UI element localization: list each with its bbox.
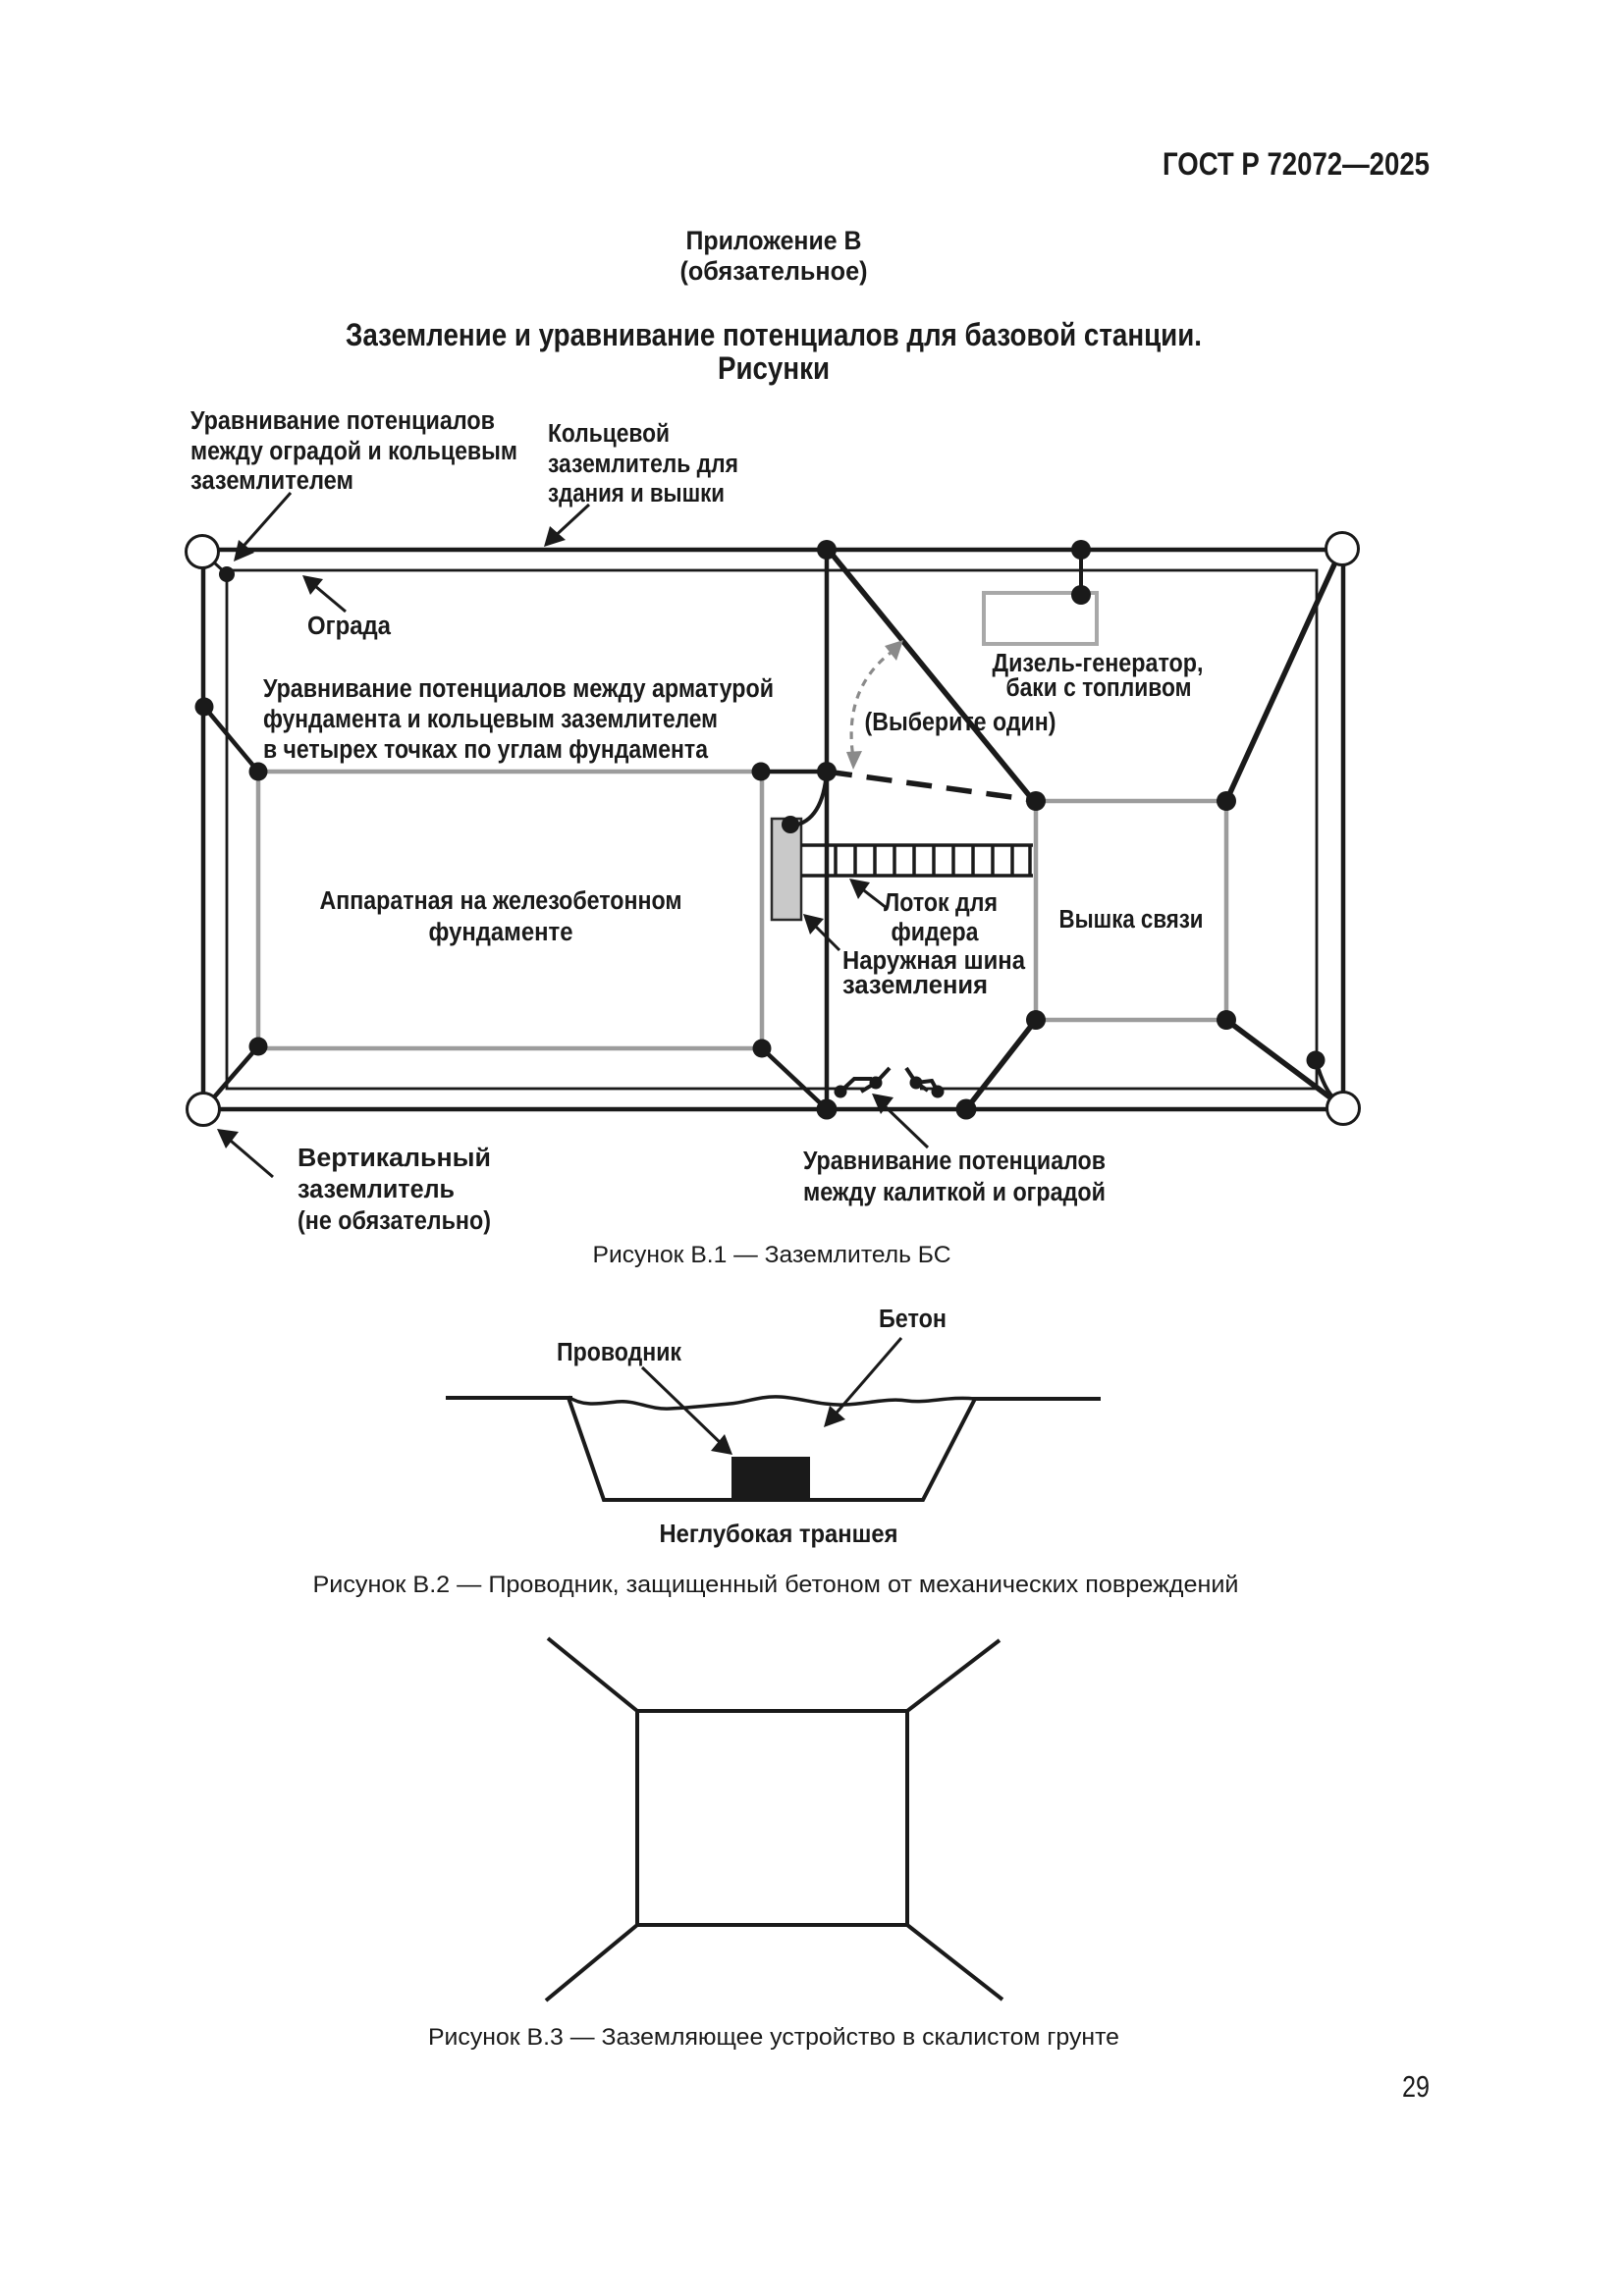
svg-text:Приложение В: Приложение В (686, 226, 862, 255)
svg-text:в четырех точках по углам фунд: в четырех точках по углам фундамента (263, 736, 709, 764)
svg-text:Аппаратная на железобетонном: Аппаратная на железобетонном (320, 887, 682, 915)
svg-text:(Выберите один): (Выберите один) (865, 709, 1056, 736)
svg-text:Рисунки: Рисунки (718, 350, 830, 386)
svg-text:Уравнивание потенциалов: Уравнивание потенциалов (190, 407, 495, 435)
svg-text:Рисунок В.2 — Проводник, защищ: Рисунок В.2 — Проводник, защищенный бето… (313, 1572, 1239, 1598)
svg-text:Уравнивание потенциалов: Уравнивание потенциалов (803, 1148, 1106, 1175)
svg-text:баки с топливом: баки с топливом (1006, 674, 1192, 702)
svg-text:фундаменте: фундаменте (429, 919, 573, 946)
svg-text:Бетон: Бетон (879, 1306, 947, 1333)
svg-text:заземлитель: заземлитель (298, 1176, 455, 1203)
svg-text:здания и вышки: здания и вышки (548, 480, 725, 507)
svg-text:Кольцевой: Кольцевой (548, 420, 670, 448)
svg-text:(обязательное): (обязательное) (680, 256, 868, 286)
svg-text:Вышка связи: Вышка связи (1059, 906, 1204, 934)
svg-text:фидера: фидера (892, 919, 980, 946)
svg-text:Дизель-генератор,: Дизель-генератор, (993, 650, 1204, 677)
svg-text:ГОСТ Р 72072—2025: ГОСТ Р 72072—2025 (1163, 146, 1430, 182)
svg-text:фундамента и кольцевым заземли: фундамента и кольцевым заземлителем (263, 706, 718, 733)
svg-text:Ограда: Ограда (307, 613, 392, 640)
svg-text:между оградой и кольцевым: между оградой и кольцевым (190, 438, 517, 465)
svg-text:Уравнивание потенциалов между: Уравнивание потенциалов между арматурой (263, 675, 774, 703)
svg-text:заземлителем: заземлителем (190, 467, 353, 495)
svg-text:между калиткой и оградой: между калиткой и оградой (803, 1179, 1106, 1206)
svg-text:заземления: заземления (842, 972, 988, 999)
svg-text:заземлитель для: заземлитель для (548, 451, 738, 478)
svg-text:Проводник: Проводник (557, 1339, 681, 1366)
svg-text:Рисунок В.3 — Заземляющее устр: Рисунок В.3 — Заземляющее устройство в с… (428, 2024, 1119, 2051)
svg-text:Неглубокая траншея: Неглубокая траншея (660, 1519, 898, 1548)
svg-text:Рисунок В.1 — Заземлитель БС: Рисунок В.1 — Заземлитель БС (593, 1242, 951, 1268)
svg-text:Наружная шина: Наружная шина (842, 947, 1026, 975)
svg-text:Лоток для: Лоток для (884, 889, 998, 917)
svg-text:(не обязательно): (не обязательно) (298, 1207, 491, 1235)
svg-text:Вертикальный: Вертикальный (298, 1145, 491, 1172)
svg-text:29: 29 (1402, 2069, 1430, 2104)
svg-text:Заземление и уравнивание потен: Заземление и уравнивание потенциалов для… (346, 317, 1202, 352)
